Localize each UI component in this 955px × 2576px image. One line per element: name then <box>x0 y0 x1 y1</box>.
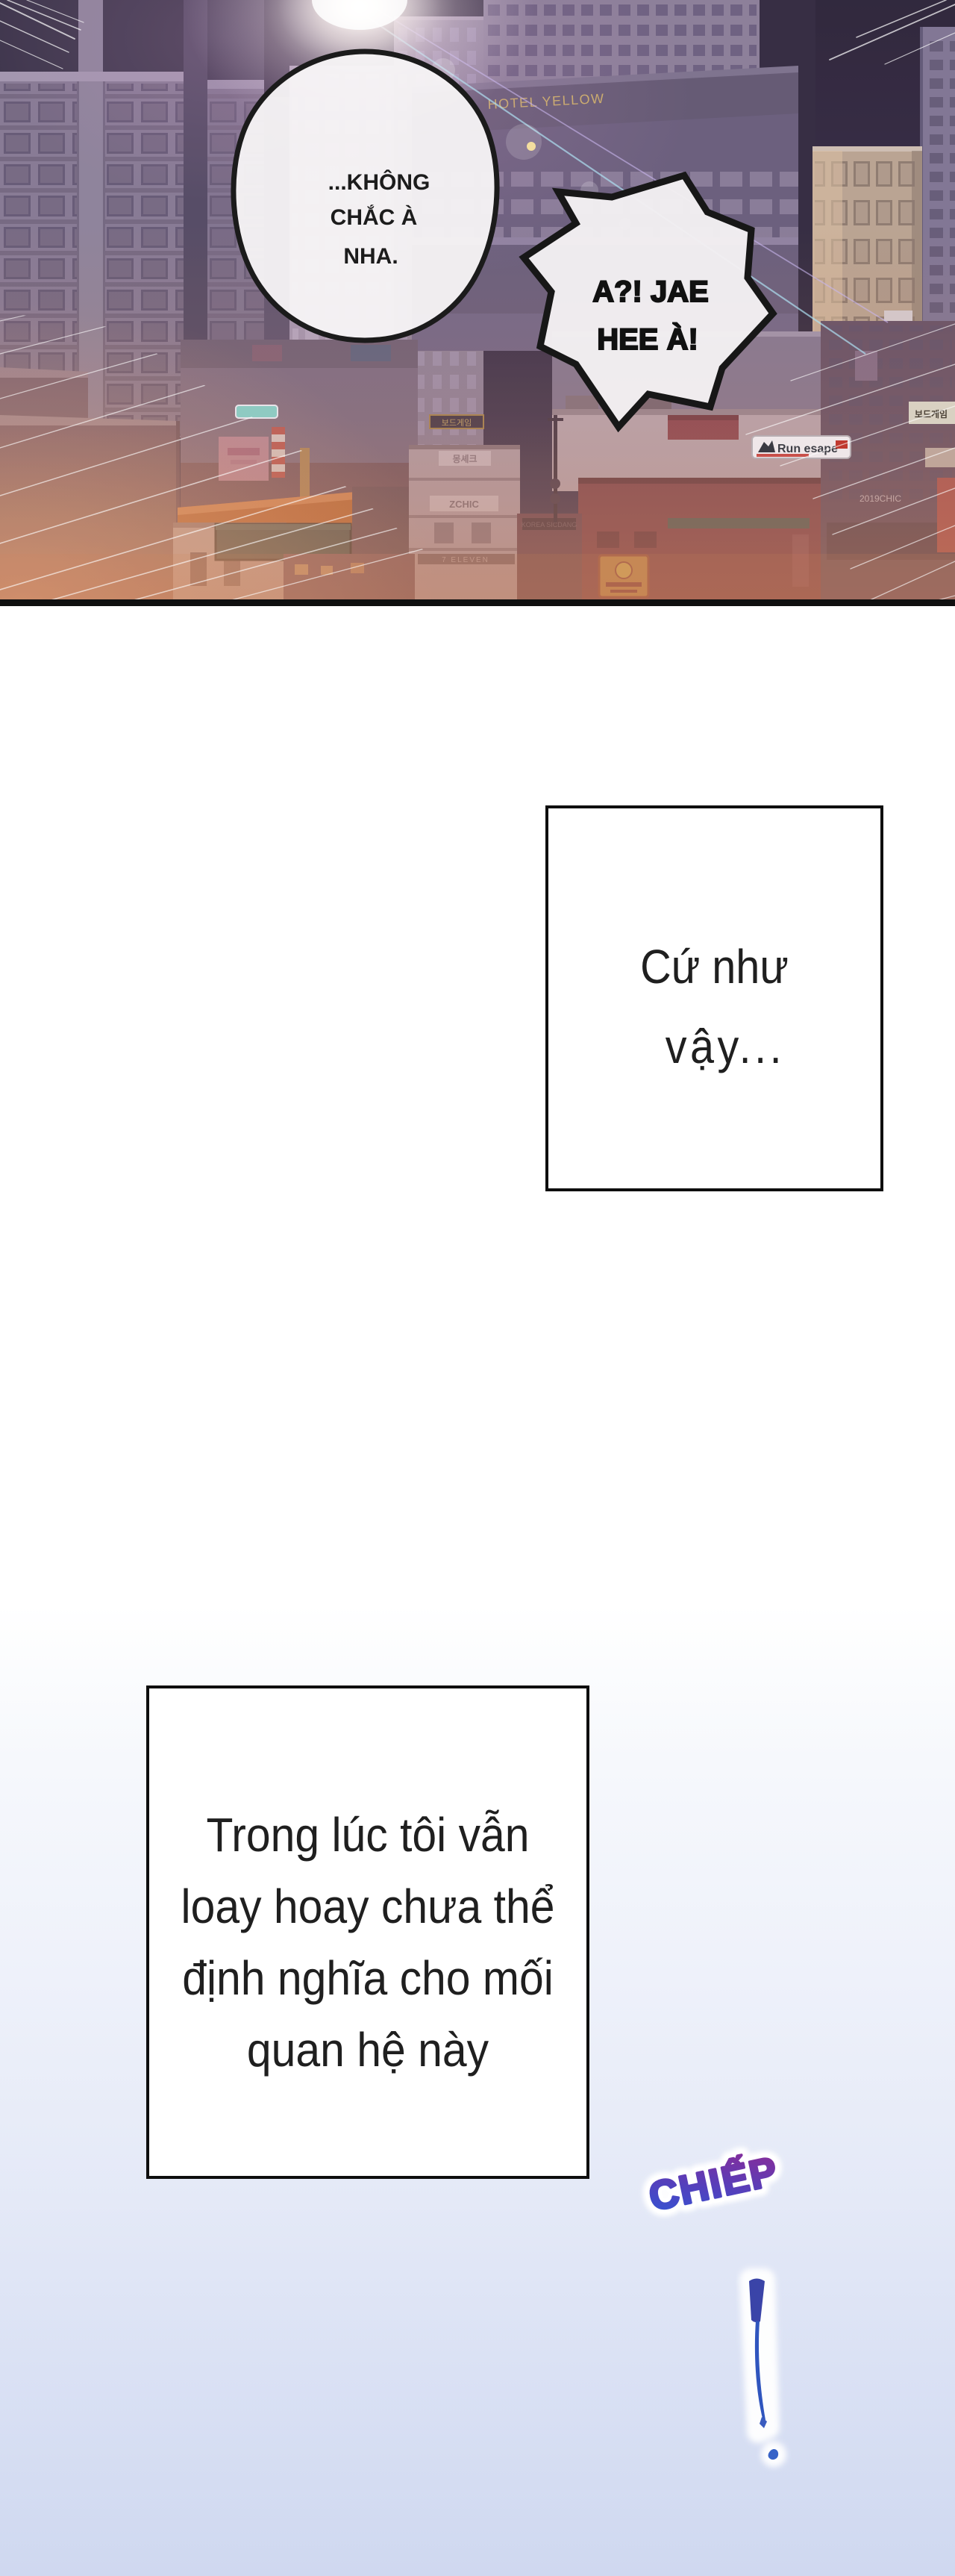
svg-text:A?! JAE: A?! JAE <box>592 275 709 308</box>
svg-text:HEE À!: HEE À! <box>597 322 698 356</box>
svg-text:...KHÔNG: ...KHÔNG <box>328 169 430 195</box>
svg-text:CHIẾP: CHIẾP <box>645 2148 783 2219</box>
svg-text:NHA.: NHA. <box>343 244 398 269</box>
svg-text:CHẮC À: CHẮC À <box>331 205 418 230</box>
